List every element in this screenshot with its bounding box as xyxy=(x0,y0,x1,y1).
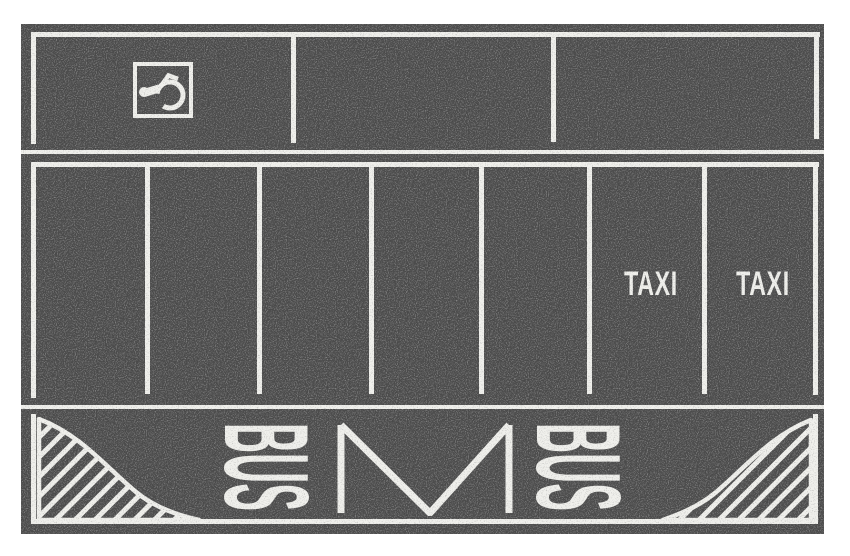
bus-marking-left-text: BUS xyxy=(222,423,314,511)
wheelchair-icon xyxy=(137,66,189,114)
m-marking xyxy=(335,422,515,516)
row-separator-line xyxy=(21,150,824,154)
taxi-stall-label-2: TAXI xyxy=(722,267,804,301)
middle-row-divider-2 xyxy=(257,166,262,394)
top-row-right-line xyxy=(814,32,819,139)
middle-row-left-line xyxy=(31,162,36,398)
middle-row-divider-3 xyxy=(369,166,374,394)
top-row-left-line xyxy=(31,32,36,144)
middle-row-divider-6 xyxy=(702,166,707,394)
bus-marking-right-text: BUS xyxy=(534,423,626,511)
top-row-divider-2 xyxy=(551,36,556,142)
bus-marking-right: BUS xyxy=(534,420,626,516)
parking-sheet: TAXI TAXI BUS BUS xyxy=(21,24,824,534)
hatched-zone-right xyxy=(660,417,815,523)
handicap-box xyxy=(133,62,193,118)
bus-marking-left: BUS xyxy=(222,420,314,516)
taxi-stall-label-1: TAXI xyxy=(610,267,692,301)
top-row-top-line xyxy=(31,32,820,37)
middle-row-right-line xyxy=(813,162,818,395)
middle-row-divider-4 xyxy=(479,166,484,394)
middle-row-divider-1 xyxy=(145,166,150,394)
hatched-zone-left xyxy=(36,417,201,523)
top-row-divider-1 xyxy=(291,36,296,143)
bus-lane-top-line xyxy=(21,405,824,409)
page: TAXI TAXI BUS BUS xyxy=(0,0,850,556)
middle-row-divider-5 xyxy=(587,166,592,394)
